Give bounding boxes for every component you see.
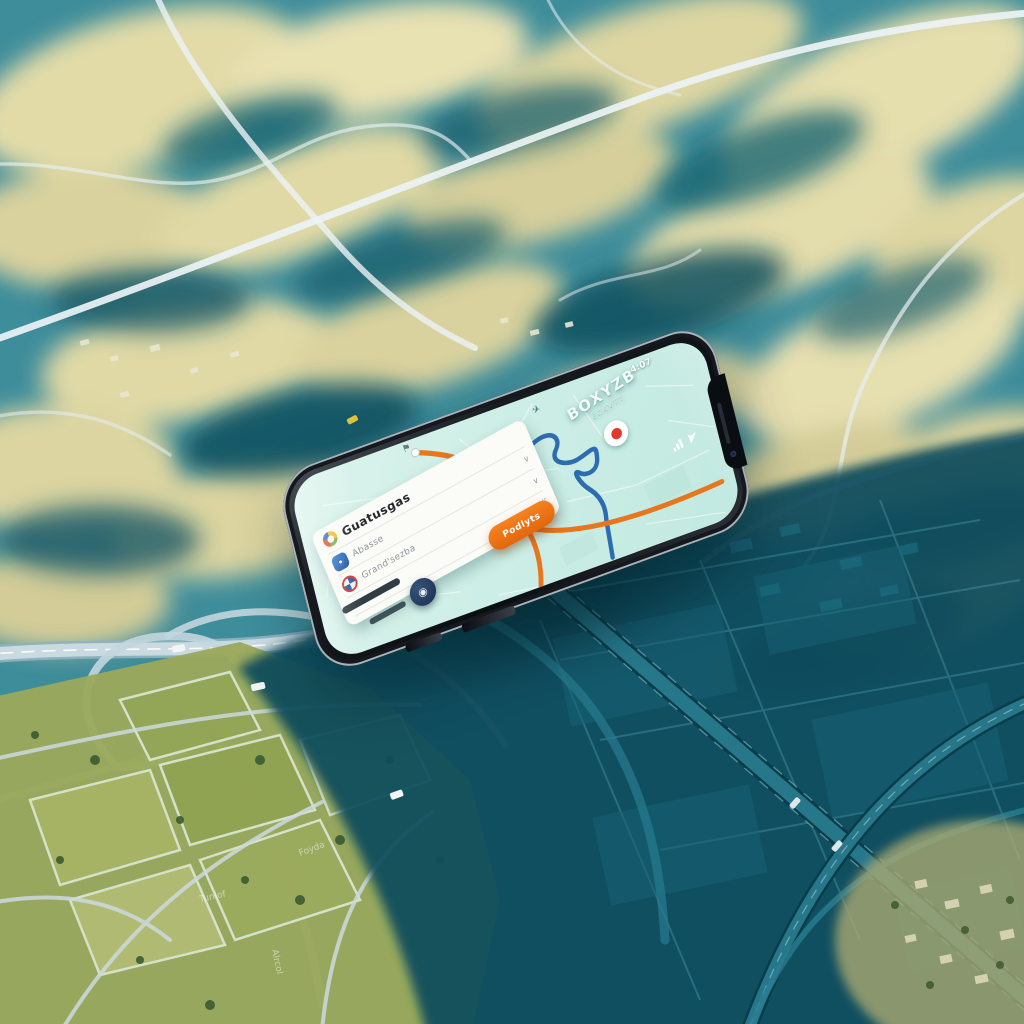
front-camera [730, 449, 737, 457]
speaker-slit [717, 402, 731, 444]
scene: { "status_bar": { "time": "4:07" }, "map… [0, 0, 1024, 1024]
chevron-down-icon: ∨ [522, 454, 530, 464]
plane-icon: ✈ [532, 404, 541, 416]
locate-icon: ◉ [417, 584, 429, 600]
ring-logo-icon [321, 528, 340, 549]
roundel-logo-icon [340, 573, 360, 595]
transit-app-icon [330, 551, 350, 573]
chevron-down-icon: ∨ [532, 476, 540, 486]
route-start-dot [411, 447, 420, 458]
